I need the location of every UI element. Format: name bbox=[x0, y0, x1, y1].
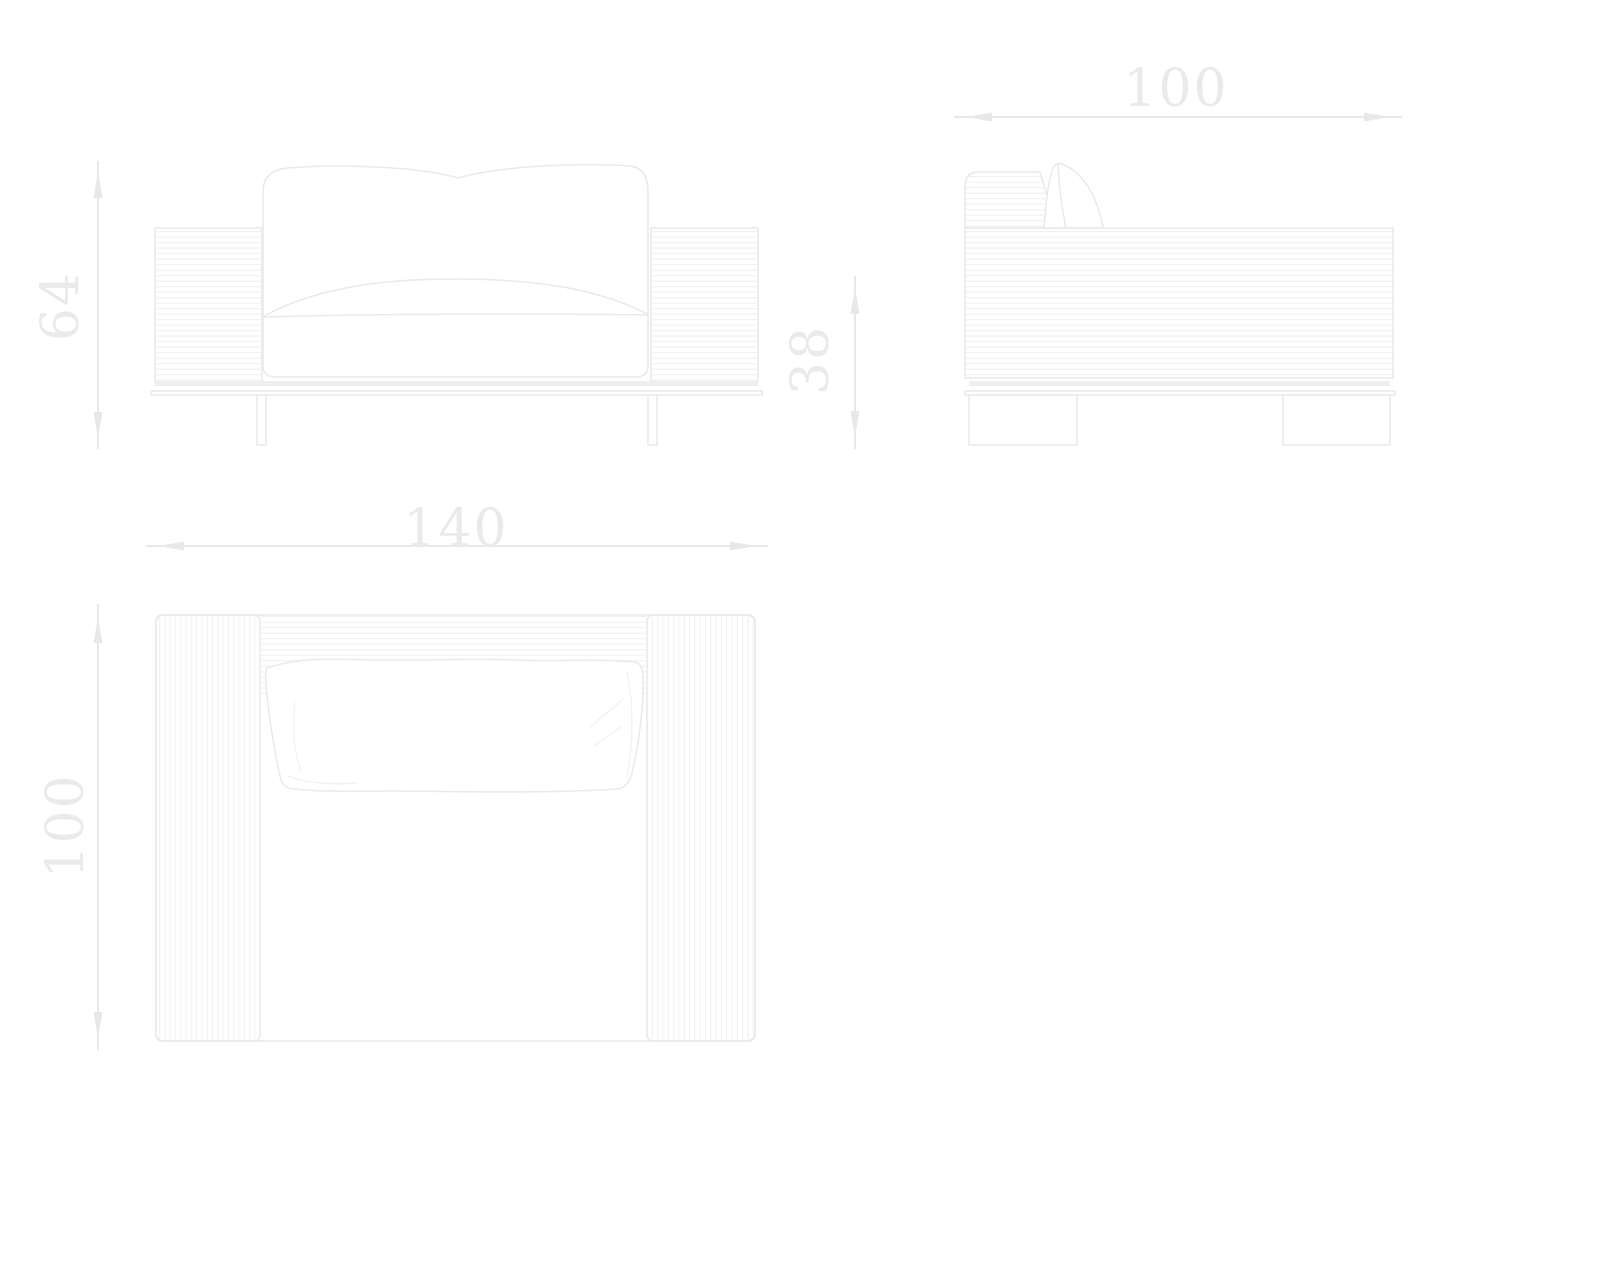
technical-drawing-page: 64 38 100 140 100 bbox=[0, 0, 1600, 1280]
plan-depth-label: 100 bbox=[36, 773, 96, 878]
side-back-cushion bbox=[1044, 163, 1103, 228]
side-view bbox=[965, 163, 1395, 445]
plan-width-label: 140 bbox=[403, 499, 508, 559]
front-right-armrest bbox=[651, 228, 758, 382]
front-base-rail bbox=[151, 391, 762, 395]
front-back-cushion bbox=[263, 165, 648, 377]
side-base-band bbox=[969, 381, 1390, 386]
front-left-leg bbox=[257, 395, 266, 445]
drawing-svg bbox=[0, 0, 1600, 1280]
front-base-band bbox=[155, 381, 758, 386]
plan-view bbox=[156, 615, 755, 1041]
side-left-foot bbox=[969, 395, 1077, 445]
seat-height-label: 38 bbox=[781, 325, 841, 395]
dimension-front-height bbox=[94, 161, 103, 449]
front-view bbox=[151, 165, 762, 445]
front-right-leg bbox=[648, 395, 657, 445]
side-depth-label: 100 bbox=[1123, 59, 1228, 119]
front-height-label: 64 bbox=[31, 271, 91, 341]
dimension-seat-height bbox=[851, 276, 860, 449]
side-backrest-panel bbox=[965, 172, 1057, 228]
front-left-armrest bbox=[155, 228, 262, 382]
side-body bbox=[965, 228, 1393, 378]
plan-right-armrest bbox=[647, 615, 755, 1041]
plan-left-armrest bbox=[156, 615, 260, 1041]
plan-back-pillow bbox=[266, 659, 643, 792]
side-right-foot bbox=[1283, 395, 1390, 445]
